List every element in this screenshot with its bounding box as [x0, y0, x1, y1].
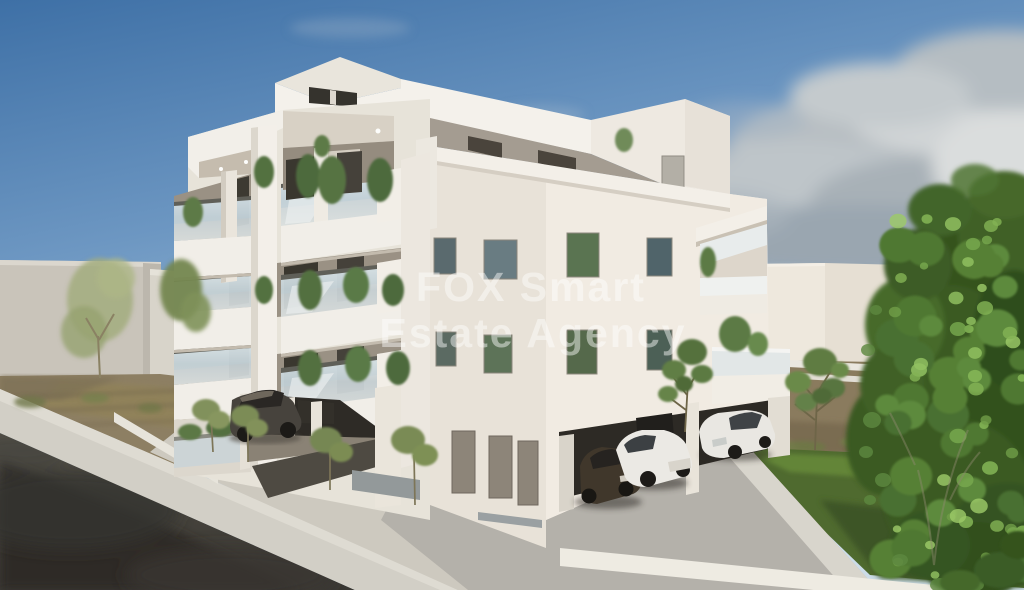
svg-text:Estate Agency: Estate Agency	[379, 310, 686, 356]
svg-text:FOX Smart: FOX Smart	[416, 264, 646, 310]
